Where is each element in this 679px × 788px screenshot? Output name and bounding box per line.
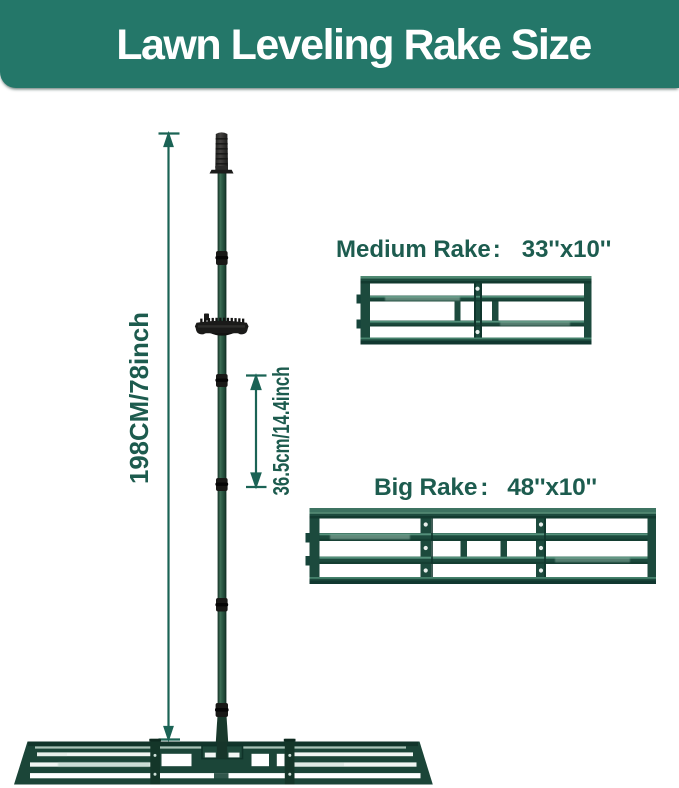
svg-text:36.5cm/14.4inch: 36.5cm/14.4inch: [268, 367, 294, 496]
svg-text:198CM/78inch: 198CM/78inch: [124, 312, 154, 484]
